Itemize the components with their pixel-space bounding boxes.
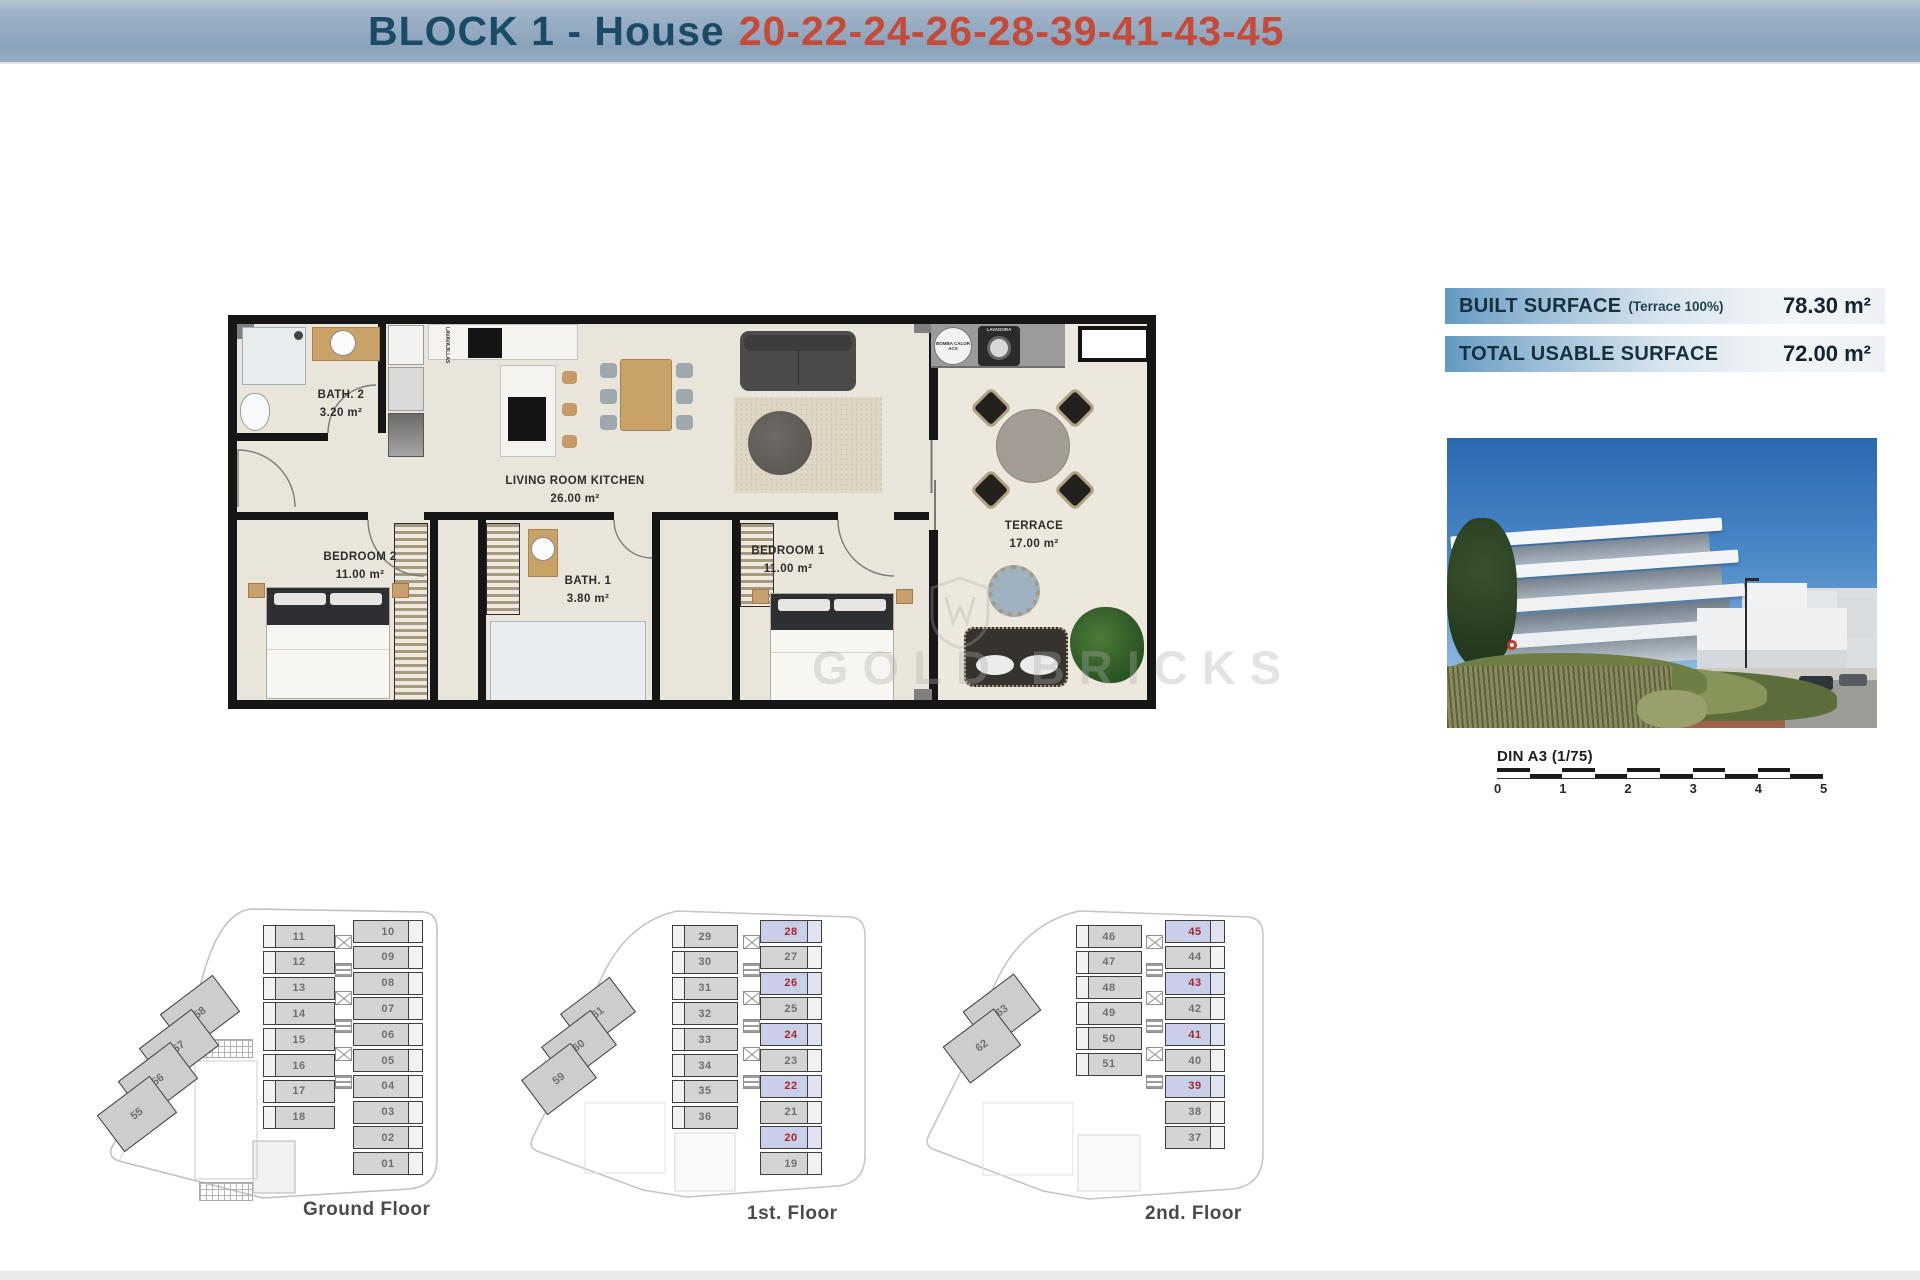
unit-number: 48: [1102, 982, 1115, 994]
photo-street-lamp: [1745, 578, 1747, 678]
photo-lamp-arm: [1745, 578, 1759, 581]
unit-cell: 46: [1076, 925, 1142, 948]
unit-number: 11: [293, 931, 306, 943]
unit-number: 40: [1188, 1055, 1201, 1067]
unit-cell: 06: [353, 1023, 423, 1046]
unit-number: 09: [381, 951, 394, 963]
stairs-icon: [335, 1019, 352, 1033]
room-label-bedroom1: BEDROOM 111.00 m²: [708, 543, 868, 579]
unit-number: 51: [1102, 1058, 1115, 1070]
wall: [228, 512, 368, 520]
unit-number: 22: [784, 1080, 797, 1092]
elevator-shaft-icon: [335, 1047, 352, 1061]
floor-label-second: 2nd. Floor: [1145, 1203, 1242, 1225]
unit-number: 08: [381, 977, 394, 989]
round-rug: [748, 411, 812, 475]
nightstand: [248, 583, 265, 598]
nightstand: [896, 589, 913, 604]
unit-cell: 35: [672, 1080, 738, 1103]
unit-cell: 21: [760, 1101, 822, 1124]
wall: [424, 512, 614, 520]
unit-number: 31: [698, 982, 711, 994]
column-marker: [914, 317, 932, 333]
elevator-shaft-icon: [1146, 1047, 1163, 1061]
title-bar: BLOCK 1 - House 20-22-24-26-28-39-41-43-…: [0, 0, 1920, 64]
unit-number: 12: [292, 956, 305, 968]
unit-number: 20: [784, 1132, 797, 1144]
photo-dry-bush: [1637, 690, 1707, 728]
elevator-shaft-icon: [743, 991, 760, 1005]
photo-right-wing: [1697, 608, 1847, 668]
room-label-living: LIVING ROOM KITCHEN26.00 m²: [455, 473, 695, 509]
usable-surface-label: TOTAL USABLE SURFACE: [1459, 343, 1718, 366]
scale-label: DIN A3 (1/75): [1497, 748, 1823, 765]
room-label-terrace: TERRACE17.00 m²: [964, 518, 1104, 554]
nightstand: [752, 589, 769, 604]
bed-bedroom-2: [266, 587, 390, 699]
unit-number: 19: [784, 1158, 797, 1170]
room-label-bath2: BATH. 23.20 m²: [281, 387, 401, 423]
unit-number: 28: [784, 926, 797, 938]
unit-cell: 45: [1165, 920, 1225, 943]
usable-surface-value: 72.00 m²: [1783, 341, 1871, 367]
title-block-house: BLOCK 1 - House: [368, 8, 725, 55]
scale-tick: 4: [1755, 781, 1762, 796]
unit-cell: 05: [353, 1049, 423, 1072]
page-title: BLOCK 1 - House 20-22-24-26-28-39-41-43-…: [368, 0, 1284, 62]
unit-cell: 38: [1165, 1101, 1225, 1124]
washer-label: LAVADORA: [978, 327, 1020, 332]
unit-number: 16: [292, 1060, 305, 1072]
scale-tick: 3: [1690, 781, 1697, 796]
dining-chair: [600, 363, 617, 378]
unit-number: 49: [1102, 1007, 1115, 1019]
dining-chair: [676, 415, 693, 430]
unit-number: 14: [292, 1008, 305, 1020]
unit-number: 05: [381, 1055, 394, 1067]
unit-cell: 19: [760, 1152, 822, 1175]
unit-number: 04: [381, 1080, 394, 1092]
unit-cell: 31: [672, 977, 738, 1000]
unit-cell: 07: [353, 997, 423, 1020]
unit-number: 59: [550, 1071, 567, 1088]
floor-label-ground: Ground Floor: [303, 1199, 430, 1221]
wall: [478, 520, 486, 707]
unit-cell: 13: [263, 977, 335, 1000]
unit-number: 38: [1188, 1106, 1201, 1118]
dining-chair: [676, 363, 693, 378]
unit-number: 36: [698, 1111, 711, 1123]
mini-plan-ground-floor: 1112131415161718100908070605040302015857…: [103, 903, 483, 1235]
shower-head-icon: [294, 331, 303, 340]
unit-cell: 51: [1076, 1053, 1142, 1076]
unit-cell: 44: [1165, 946, 1225, 969]
unit-cell: 36: [672, 1106, 738, 1129]
stairs-icon: [743, 1019, 760, 1033]
unit-cell: 49: [1076, 1002, 1142, 1025]
unit-cells: 2930313233343536282726252423222120196160…: [525, 903, 905, 1235]
cooktop: [508, 397, 546, 441]
elevator-shaft-icon: [335, 935, 352, 949]
wardrobe: [486, 523, 520, 615]
unit-cell: 23: [760, 1049, 822, 1072]
unit-cell: 08: [353, 972, 423, 995]
unit-number: 23: [784, 1055, 797, 1067]
unit-cell: 12: [263, 951, 335, 974]
stairs-icon: [1146, 1075, 1163, 1089]
unit-number: 32: [698, 1008, 711, 1020]
unit-number: 34: [698, 1060, 711, 1072]
dishwasher-label: LAVAVAJILLAS: [444, 327, 450, 363]
unit-number: 02: [381, 1132, 394, 1144]
unit-cell: 25: [760, 997, 822, 1020]
unit-cell: 39: [1165, 1075, 1225, 1098]
toilet: [240, 393, 270, 431]
watermark-text: GOLD BRICKS: [812, 640, 1295, 695]
unit-cell: 14: [263, 1002, 335, 1025]
wall: [652, 520, 660, 707]
stairs-icon: [335, 1075, 352, 1089]
unit-number: 03: [381, 1106, 394, 1118]
unit-cell: 34: [672, 1054, 738, 1077]
page-bottom-strip: [0, 1271, 1920, 1280]
unit-cell: 16: [263, 1054, 335, 1077]
mini-plan-first-floor: 2930313233343536282726252423222120196160…: [525, 903, 905, 1235]
unit-cell: 18: [263, 1106, 335, 1129]
stairs-icon: [1146, 963, 1163, 977]
unit-cell: 24: [760, 1023, 822, 1046]
photo-car: [1839, 674, 1867, 686]
surface-info: BUILT SURFACE (Terrace 100%) 78.30 m² TO…: [1445, 288, 1885, 384]
nightstand: [392, 583, 409, 598]
unit-number: 30: [698, 956, 711, 968]
unit-cell: 26: [760, 972, 822, 995]
unit-number: 15: [292, 1034, 305, 1046]
stairs-icon: [1146, 1019, 1163, 1033]
unit-number: 33: [698, 1034, 711, 1046]
unit-number: 07: [381, 1003, 394, 1015]
scale-bar: DIN A3 (1/75) 012345: [1497, 748, 1823, 797]
scale-ruler: [1497, 768, 1823, 779]
elevator-shaft-icon: [743, 935, 760, 949]
kitchen-sink-appliance: [468, 328, 502, 358]
unit-number: 24: [784, 1029, 797, 1041]
unit-cell: 10: [353, 920, 423, 943]
stairs-icon: [743, 963, 760, 977]
wall: [894, 512, 938, 520]
unit-cell: 17: [263, 1080, 335, 1103]
scale-ticks: 012345: [1497, 779, 1823, 797]
unit-cell: 43: [1165, 972, 1225, 995]
bar-stool: [562, 435, 577, 448]
built-surface-note: (Terrace 100%): [1628, 299, 1723, 314]
unit-cells: 1112131415161718100908070605040302015857…: [103, 903, 483, 1235]
unit-number: 17: [292, 1085, 305, 1097]
sofa: [740, 331, 856, 391]
unit-number: 27: [784, 951, 797, 963]
wall: [652, 512, 838, 520]
unit-number: 29: [698, 931, 711, 943]
unit-number: 50: [1102, 1033, 1115, 1045]
dining-chair: [676, 389, 693, 404]
unit-number: 43: [1188, 977, 1201, 989]
photo-traffic-sign: [1507, 640, 1517, 650]
scale-tick: 2: [1624, 781, 1631, 796]
unit-cell: 29: [672, 925, 738, 948]
unit-number: 45: [1188, 926, 1201, 938]
unit-number: 39: [1188, 1080, 1201, 1092]
mini-plan-second-floor: 4647484950514544434241403938376362 2nd. …: [893, 903, 1273, 1235]
kitchen-cabinet: [388, 325, 424, 365]
washbasin: [330, 330, 356, 356]
unit-cell: 47: [1076, 951, 1142, 974]
dining-chair: [600, 389, 617, 404]
unit-number: 21: [784, 1106, 797, 1118]
unit-cell: 15: [263, 1028, 335, 1051]
unit-number: 46: [1102, 931, 1115, 943]
unit-cell: 04: [353, 1075, 423, 1098]
elevator-shaft-icon: [743, 1047, 760, 1061]
unit-number: 42: [1188, 1003, 1201, 1015]
unit-cell: 27: [760, 946, 822, 969]
unit-cell: 22: [760, 1075, 822, 1098]
unit-cell: 01: [353, 1152, 423, 1175]
elevator-shaft-icon: [1146, 935, 1163, 949]
wall: [228, 433, 328, 441]
unit-number: 44: [1188, 951, 1201, 963]
unit-number: 55: [128, 1105, 145, 1122]
photo-car: [1799, 676, 1833, 690]
unit-cell: 33: [672, 1028, 738, 1051]
unit-cell: 20: [760, 1126, 822, 1149]
elevator-shaft-icon: [1146, 991, 1163, 1005]
unit-number: 06: [381, 1029, 394, 1041]
unit-cell: 40: [1165, 1049, 1225, 1072]
photo-grasses: [1447, 666, 1672, 728]
unit-number: 41: [1188, 1029, 1201, 1041]
washing-machine: LAVADORA: [978, 326, 1020, 366]
unit-cell: 48: [1076, 976, 1142, 999]
unit-number: 62: [973, 1038, 990, 1055]
kitchen-counter: [428, 324, 578, 360]
floor-label-first: 1st. Floor: [747, 1203, 838, 1225]
unit-cell: 50: [1076, 1027, 1142, 1050]
unit-number: 13: [292, 982, 305, 994]
unit-number: 37: [1188, 1132, 1201, 1144]
washbasin: [531, 537, 555, 561]
unit-cell: 28: [760, 920, 822, 943]
usable-surface-row: TOTAL USABLE SURFACE 72.00 m²: [1445, 336, 1885, 372]
dining-table: [620, 359, 672, 431]
elevator-shaft-icon: [335, 991, 352, 1005]
dining-chair: [600, 415, 617, 430]
built-surface-label: BUILT SURFACE: [1459, 295, 1621, 318]
unit-cell: 11: [263, 925, 335, 948]
scale-tick: 1: [1559, 781, 1566, 796]
built-surface-row: BUILT SURFACE (Terrace 100%) 78.30 m²: [1445, 288, 1885, 324]
terrace-table: [996, 409, 1070, 483]
title-house-numbers: 20-22-24-26-28-39-41-43-45: [739, 8, 1285, 55]
building-photo: [1447, 438, 1877, 728]
stairs-icon: [743, 1075, 760, 1089]
unit-number: 25: [784, 1003, 797, 1015]
unit-cells: 4647484950514544434241403938376362: [893, 903, 1273, 1235]
unit-cell: 30: [672, 951, 738, 974]
unit-cell: 32: [672, 1002, 738, 1025]
scale-tick: 5: [1820, 781, 1827, 796]
heat-pump: BOMBA CALOR ACS: [934, 327, 972, 365]
unit-number: 26: [784, 977, 797, 989]
unit-number: 10: [381, 926, 394, 938]
terrace-pouf: [988, 565, 1040, 617]
unit-number: 01: [381, 1158, 394, 1170]
stairs-icon: [335, 963, 352, 977]
unit-number: 47: [1102, 956, 1115, 968]
unit-number: 35: [698, 1085, 711, 1097]
unit-cell: 41: [1165, 1023, 1225, 1046]
room-label-bath1: BATH. 13.80 m²: [528, 573, 648, 609]
unit-cell: 09: [353, 946, 423, 969]
bar-stool: [562, 403, 577, 416]
built-surface-value: 78.30 m²: [1783, 293, 1871, 319]
unit-cell: 37: [1165, 1126, 1225, 1149]
brochure-page: { "header": { "title_prefix": "BLOCK 1 -…: [0, 0, 1920, 1280]
bar-stool: [562, 371, 577, 384]
terrace-window: [1078, 326, 1150, 362]
unit-cell: 42: [1165, 997, 1225, 1020]
unit-number: 18: [292, 1111, 305, 1123]
scale-tick: 0: [1494, 781, 1501, 796]
unit-cell: 03: [353, 1101, 423, 1124]
shower: [490, 621, 646, 701]
room-label-bedroom2: BEDROOM 211.00 m²: [280, 549, 440, 585]
unit-cell: 02: [353, 1126, 423, 1149]
